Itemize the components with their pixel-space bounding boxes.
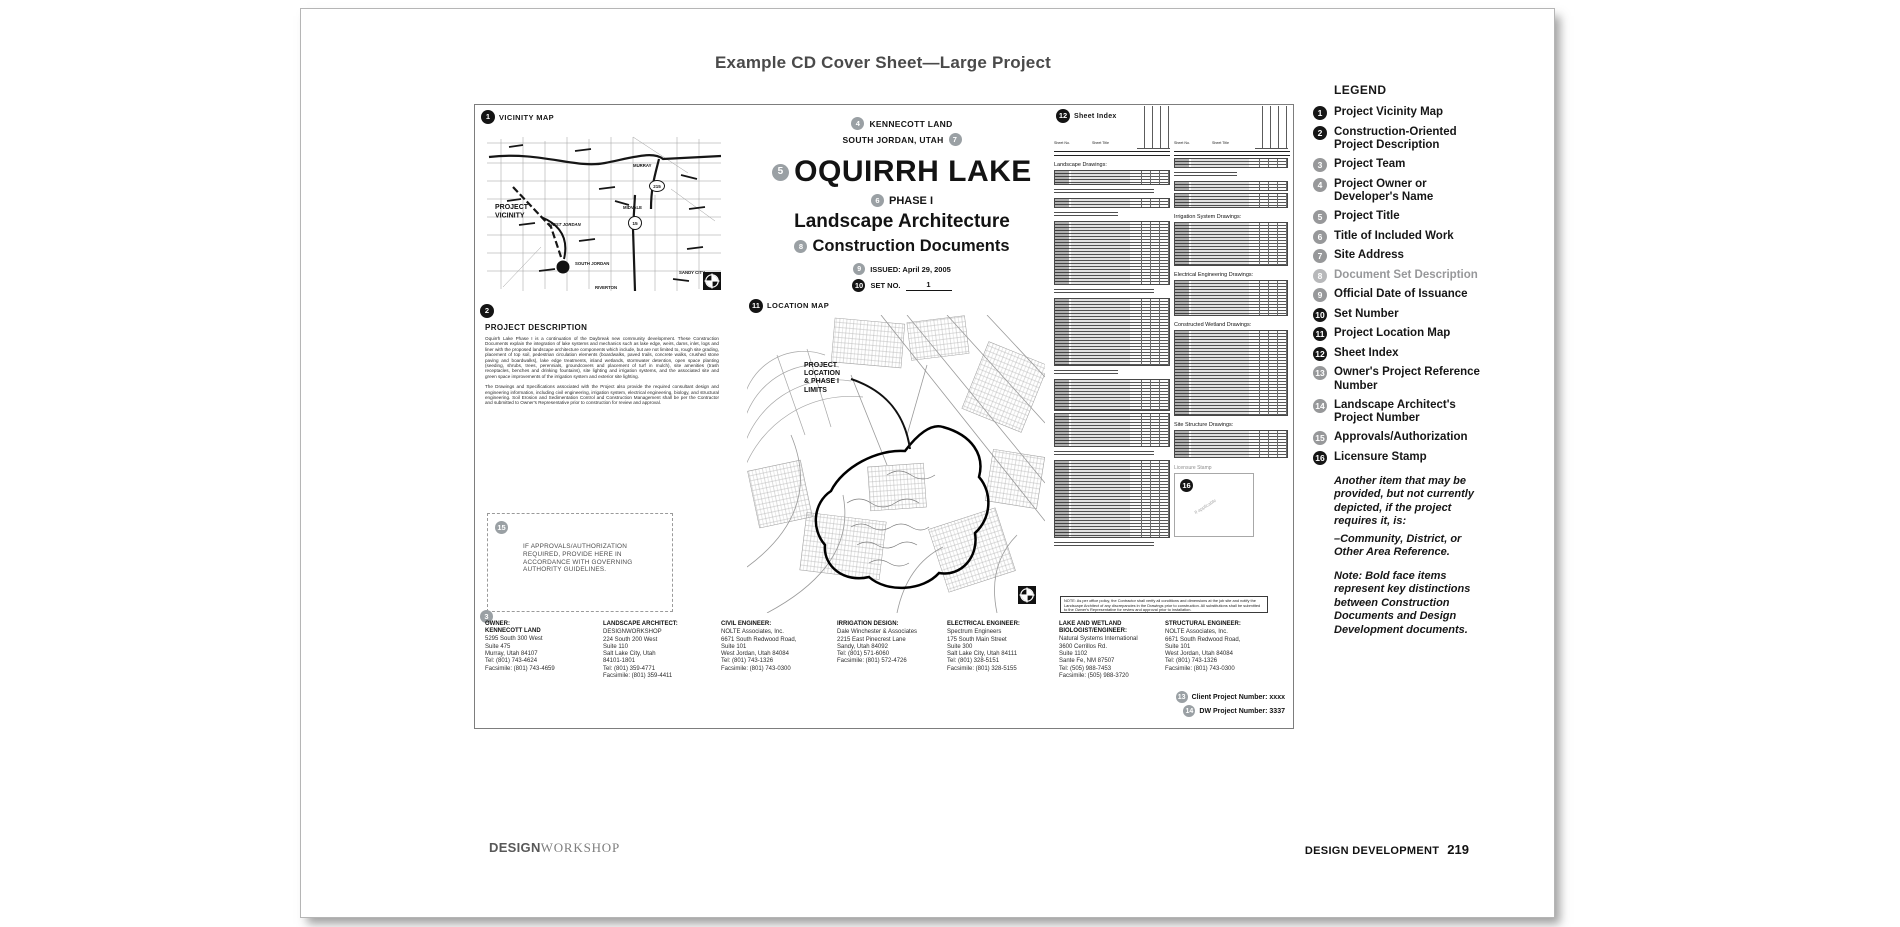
legend-item: 8 Document Set Description xyxy=(1313,269,1489,283)
legend-number-bubble: 12 xyxy=(1313,347,1327,361)
legend-number-bubble: 3 xyxy=(1313,158,1327,172)
sheet-index-column-left: Landscape Drawings: xyxy=(1054,158,1170,551)
logo-design: DESIGN xyxy=(489,840,541,855)
index-table xyxy=(1174,158,1288,168)
licensure-stamp-box: 16 If applicable xyxy=(1174,473,1254,537)
callout-bubble-4: 4 xyxy=(851,117,864,130)
callout-bubble-11: 11 xyxy=(749,299,763,313)
index-header-rule-right xyxy=(1174,151,1290,156)
callout-bubble-6: 6 xyxy=(871,194,884,207)
index-table xyxy=(1054,298,1170,366)
team-member-role: ELECTRICAL ENGINEER: xyxy=(947,621,1059,628)
index-note-lines xyxy=(1174,172,1237,178)
legend-number-bubble: 16 xyxy=(1313,451,1327,465)
legend-number-bubble: 15 xyxy=(1313,431,1327,445)
legend-item-label: Document Set Description xyxy=(1334,269,1478,283)
project-description-title: PROJECT DESCRIPTION xyxy=(485,323,587,332)
index-table xyxy=(1174,430,1288,458)
legend-note-3: Note: Bold face items represent key dist… xyxy=(1334,570,1489,638)
legend-item-label: Approvals/Authorization xyxy=(1334,431,1468,445)
legend-item: 6 Title of Included Work xyxy=(1313,230,1489,244)
team-member-address: Natural Systems International 3600 Cerri… xyxy=(1059,636,1165,680)
index-table xyxy=(1054,170,1170,185)
set-number-value: 1 xyxy=(906,280,952,291)
team-member: STRUCTURAL ENGINEER: NOLTE Associates, I… xyxy=(1165,621,1279,680)
team-member-address: 5295 South 300 West Suite 475 Murray, Ut… xyxy=(485,636,603,672)
index-table xyxy=(1174,222,1288,266)
north-compass-icon xyxy=(703,272,721,290)
legend-item: 4 Project Owner or Developer's Name xyxy=(1313,178,1489,205)
city-label-sandy-city: SANDY CITY xyxy=(679,270,705,275)
legend-number-bubble: 6 xyxy=(1313,230,1327,244)
index-note-lines xyxy=(1054,542,1154,548)
project-location-callout: PROJECT LOCATION & PHASE I LIMITS xyxy=(804,362,840,395)
location-map-container: PROJECT LOCATION & PHASE I LIMITS xyxy=(747,315,1045,613)
team-member-role: IRRIGATION DESIGN: xyxy=(837,621,947,628)
team-member: ELECTRICAL ENGINEER: Spectrum Engineers … xyxy=(947,621,1059,680)
index-note-lines xyxy=(1054,370,1118,376)
index-table xyxy=(1054,413,1170,447)
index-note-lines xyxy=(1054,212,1118,218)
designworkshop-logo: DESIGNWORKSHOP xyxy=(489,840,620,856)
city-label-murray: MURRAY xyxy=(633,163,652,168)
callout-bubble-16: 16 xyxy=(1180,479,1193,492)
legend-item-label: Sheet Index xyxy=(1334,347,1399,361)
approvals-placeholder-text: IF APPROVALS/AUTHORIZATION REQUIRED, PRO… xyxy=(523,543,651,574)
licensure-stamp-placeholder: If applicable xyxy=(1194,498,1217,515)
legend-item: 9 Official Date of Issuance xyxy=(1313,288,1489,302)
vicinity-map-graphic: 215 15 MURRAY MIDVALE WEST JORDAN SOUTH … xyxy=(483,129,725,295)
chapter-label: DESIGN DEVELOPMENT xyxy=(1305,845,1439,857)
route-15-shield: 15 xyxy=(632,221,638,227)
callout-bubble-14: 14 xyxy=(1183,705,1195,717)
callout-bubble-9: 9 xyxy=(853,263,865,275)
callout-bubble-2: 2 xyxy=(480,304,494,318)
team-member-address: DESIGNWORKSHOP 224 South 200 West Suite … xyxy=(603,629,721,680)
legend-number-bubble: 9 xyxy=(1313,288,1327,302)
legend-item: 10 Set Number xyxy=(1313,308,1489,322)
page-title: Example CD Cover Sheet—Large Project xyxy=(474,53,1292,73)
sheet-index-column-right: Irrigation System Drawings: Electrical E… xyxy=(1174,158,1288,537)
team-member-role: LAKE AND WETLAND BIOLOGIST/ENGINEER: xyxy=(1059,621,1165,635)
city-label-midvale: MIDVALE xyxy=(623,205,642,210)
legend-note-3-bold: Bold face xyxy=(1365,570,1415,582)
legend-item: 15 Approvals/Authorization xyxy=(1313,431,1489,445)
legend-item-label: Official Date of Issuance xyxy=(1334,288,1468,302)
project-description-body: Oquirrh Lake Phase I is a continuation o… xyxy=(485,336,719,411)
sheet-index-title: Sheet Index xyxy=(1074,113,1117,120)
page-number: 219 xyxy=(1447,842,1469,857)
index-column-headers-right: Sheet No. Sheet Title xyxy=(1174,141,1290,145)
legend-item: 7 Site Address xyxy=(1313,249,1489,263)
legend-item: 5 Project Title xyxy=(1313,210,1489,224)
callout-bubble-5: 5 xyxy=(772,164,789,181)
cd-cover-sheet: 1 VICINITY MAP xyxy=(474,104,1294,729)
legend-item-label: Project Team xyxy=(1334,158,1405,172)
legend-number-bubble: 2 xyxy=(1313,126,1327,140)
vicinity-map-title: VICINITY MAP xyxy=(499,113,554,122)
running-footer: DESIGN DEVELOPMENT219 xyxy=(1305,842,1469,857)
legend-number-bubble: 1 xyxy=(1313,106,1327,120)
document-set-description: Construction Documents xyxy=(812,237,1009,256)
phase-title: PHASE I xyxy=(889,195,933,207)
legend-item-label: Construction-Oriented Project Descriptio… xyxy=(1334,126,1489,153)
index-section-wetland: Constructed Wetland Drawings: xyxy=(1174,322,1288,328)
legend-item-label: Project Vicinity Map xyxy=(1334,106,1443,120)
legend-item-label: Project Title xyxy=(1334,210,1400,224)
index-table xyxy=(1054,379,1170,411)
team-member-address: NOLTE Associates, Inc. 6671 South Redwoo… xyxy=(1165,629,1279,673)
legend-item-label: Landscape Architect's Project Number xyxy=(1334,399,1489,426)
legend-item: 2 Construction-Oriented Project Descript… xyxy=(1313,126,1489,153)
project-vicinity-callout-line2: VICINITY xyxy=(495,213,525,220)
legend-item: 1 Project Vicinity Map xyxy=(1313,106,1489,120)
project-description-paragraph-1: Oquirrh Lake Phase I is a continuation o… xyxy=(485,336,719,379)
legend-item: 12 Sheet Index xyxy=(1313,347,1489,361)
index-table xyxy=(1054,198,1170,208)
index-table xyxy=(1174,280,1288,316)
callout-bubble-15: 15 xyxy=(495,521,508,534)
route-215-shield: 215 xyxy=(653,184,661,189)
index-note-lines xyxy=(1054,451,1154,457)
team-member-role: CIVIL ENGINEER: xyxy=(721,621,837,628)
location-map-graphic xyxy=(747,315,1045,613)
col-header-sheet-title: Sheet Title xyxy=(1092,141,1109,145)
col-header-sheet-title: Sheet Title xyxy=(1212,141,1229,145)
index-section-site-structure: Site Structure Drawings: xyxy=(1174,422,1288,428)
legend-note-3-prefix: Note: xyxy=(1334,570,1365,582)
team-member: CIVIL ENGINEER: NOLTE Associates, Inc. 6… xyxy=(721,621,837,680)
north-compass-icon xyxy=(1018,586,1036,604)
index-section-electrical: Electrical Engineering Drawings: xyxy=(1174,272,1288,278)
index-table xyxy=(1174,181,1288,191)
index-section-irrigation: Irrigation System Drawings: xyxy=(1174,214,1288,220)
legend-item-label: Project Location Map xyxy=(1334,327,1450,341)
legend-number-bubble: 11 xyxy=(1313,327,1327,341)
team-member-role: OWNER: KENNECOTT LAND xyxy=(485,621,603,635)
legend-item: 3 Project Team xyxy=(1313,158,1489,172)
callout-bubble-7: 7 xyxy=(949,133,962,146)
legend-item: 11 Project Location Map xyxy=(1313,327,1489,341)
legend-number-bubble: 14 xyxy=(1313,399,1327,413)
team-member-address: Spectrum Engineers 175 South Main Street… xyxy=(947,629,1059,673)
legend-note-1: Another item that may be provided, but n… xyxy=(1334,475,1489,529)
legend-number-bubble: 7 xyxy=(1313,249,1327,263)
index-header-rule-left xyxy=(1054,151,1170,156)
legend-item: 13 Owner's Project Reference Number xyxy=(1313,366,1489,393)
approvals-box: 15 IF APPROVALS/AUTHORIZATION REQUIRED, … xyxy=(487,513,673,612)
set-number-label: SET NO. xyxy=(870,281,900,290)
project-description-paragraph-2: The Drawings and Specifications associat… xyxy=(485,384,719,406)
logo-workshop: WORKSHOP xyxy=(541,840,620,855)
legend-note-2: –Community, District, or Other Area Refe… xyxy=(1334,533,1489,560)
legend-number-bubble: 13 xyxy=(1313,366,1327,380)
callout-bubble-1: 1 xyxy=(481,110,495,124)
index-section-landscape: Landscape Drawings: xyxy=(1054,162,1170,168)
legend-number-bubble: 10 xyxy=(1313,308,1327,322)
legend-item-label: Project Owner or Developer's Name xyxy=(1334,178,1489,205)
index-table xyxy=(1174,193,1288,208)
legend-items: 1 Project Vicinity Map 2 Construction-Or… xyxy=(1313,106,1489,465)
col-header-sheet-no: Sheet No. xyxy=(1174,141,1190,145)
legend-item-label: Licensure Stamp xyxy=(1334,451,1427,465)
legend-number-bubble: 4 xyxy=(1313,178,1327,192)
project-team-row: OWNER: KENNECOTT LAND 5295 South 300 Wes… xyxy=(485,621,1285,680)
team-member: IRRIGATION DESIGN: Dale Winchester & Ass… xyxy=(837,621,947,680)
legend-item-label: Set Number xyxy=(1334,308,1399,322)
client-project-number: Client Project Number: xxxx xyxy=(1192,694,1285,701)
legend-item: 16 Licensure Stamp xyxy=(1313,451,1489,465)
included-work-title: Landscape Architecture xyxy=(794,211,1010,233)
legend-panel: LEGEND 1 Project Vicinity Map 2 Construc… xyxy=(1313,83,1489,637)
index-note-lines xyxy=(1054,189,1154,195)
legend-item-label: Owner's Project Reference Number xyxy=(1334,366,1489,393)
index-note-lines xyxy=(1054,289,1154,295)
index-table xyxy=(1054,460,1170,538)
index-table xyxy=(1174,330,1288,416)
city-label-riverton: RIVERTON xyxy=(595,285,617,290)
issue-date: ISSUED: April 29, 2005 xyxy=(870,265,951,274)
team-member: LAKE AND WETLAND BIOLOGIST/ENGINEER: Nat… xyxy=(1059,621,1165,680)
callout-bubble-10: 10 xyxy=(852,279,865,292)
index-column-headers-left: Sheet No. Sheet Title xyxy=(1054,141,1170,145)
callout-bubble-13: 13 xyxy=(1176,691,1188,703)
legend-item-label: Title of Included Work xyxy=(1334,230,1454,244)
team-member-address: NOLTE Associates, Inc. 6671 South Redwoo… xyxy=(721,629,837,673)
site-address: SOUTH JORDAN, UTAH xyxy=(842,135,943,145)
legend-item: 14 Landscape Architect's Project Number xyxy=(1313,399,1489,426)
book-page: Example CD Cover Sheet—Large Project 1 V… xyxy=(300,8,1555,918)
sheet-index-note-bar: NOTE: As per office policy, the Contract… xyxy=(1060,596,1268,613)
legend-number-bubble: 5 xyxy=(1313,210,1327,224)
project-vicinity-callout-line1: PROJECT xyxy=(495,204,529,211)
callout-bubble-12: 12 xyxy=(1056,109,1070,123)
team-member-role: STRUCTURAL ENGINEER: xyxy=(1165,621,1279,628)
team-member-role: LANDSCAPE ARCHITECT: xyxy=(603,621,721,628)
team-member: OWNER: KENNECOTT LAND 5295 South 300 Wes… xyxy=(485,621,603,680)
licensure-stamp-label: Licensure Stamp xyxy=(1174,465,1288,471)
location-map-title: LOCATION MAP xyxy=(767,301,829,310)
legend-number-bubble: 8 xyxy=(1313,269,1327,283)
city-label-south-jordan: SOUTH JORDAN xyxy=(575,261,609,266)
legend-title: LEGEND xyxy=(1334,83,1489,97)
team-member: LANDSCAPE ARCHITECT: DESIGNWORKSHOP 224 … xyxy=(603,621,721,680)
project-numbers: 13 Client Project Number: xxxx 14 DW Pro… xyxy=(1176,691,1285,717)
project-title: OQUIRRH LAKE xyxy=(794,155,1032,189)
dw-project-number: DW Project Number: 3337 xyxy=(1199,708,1285,715)
owner-name: KENNECOTT LAND xyxy=(869,119,952,129)
index-table xyxy=(1054,221,1170,285)
title-block: 4 KENNECOTT LAND SOUTH JORDAN, UTAH 7 5 … xyxy=(737,115,1067,292)
callout-bubble-8: 8 xyxy=(794,240,807,253)
team-member-address: Dale Winchester & Associates 2215 East P… xyxy=(837,629,947,665)
legend-item-label: Site Address xyxy=(1334,249,1404,263)
col-header-sheet-no: Sheet No. xyxy=(1054,141,1070,145)
